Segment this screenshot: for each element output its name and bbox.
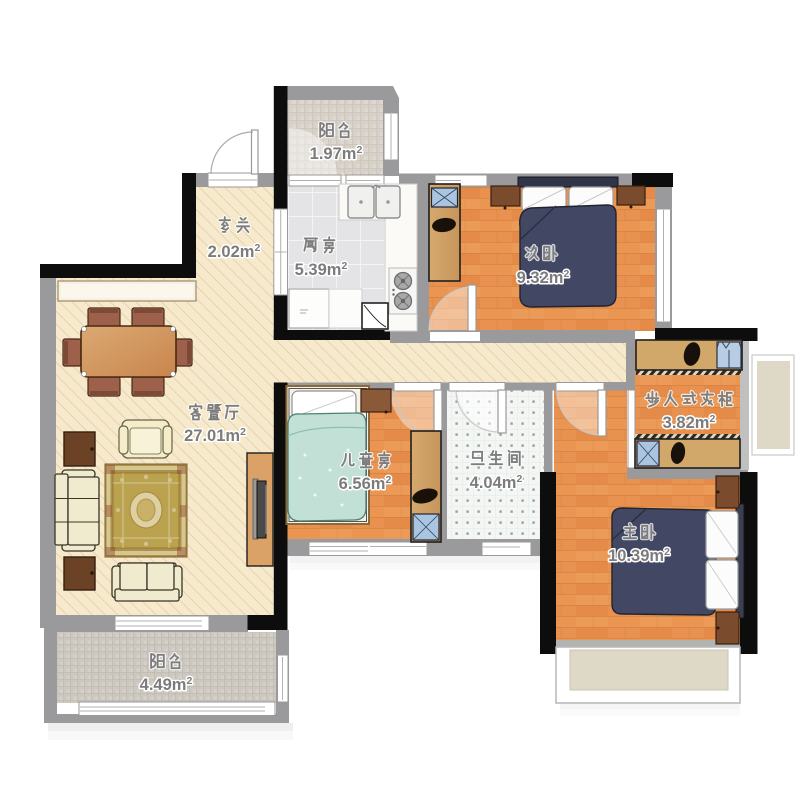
svg-text:10.39m2: 10.39m2 [608,546,670,565]
svg-text:9.32m2: 9.32m2 [517,268,570,287]
svg-text:3.82m2: 3.82m2 [663,413,716,432]
svg-text:2.02m2: 2.02m2 [208,242,261,261]
svg-text:27.01m2: 27.01m2 [184,426,246,445]
svg-text:4.04m2: 4.04m2 [470,473,523,492]
svg-text:5.39m2: 5.39m2 [295,260,348,279]
svg-text:6.56m2: 6.56m2 [339,474,392,493]
svg-text:4.49m2: 4.49m2 [140,675,193,694]
svg-text:1.97m2: 1.97m2 [310,144,363,163]
